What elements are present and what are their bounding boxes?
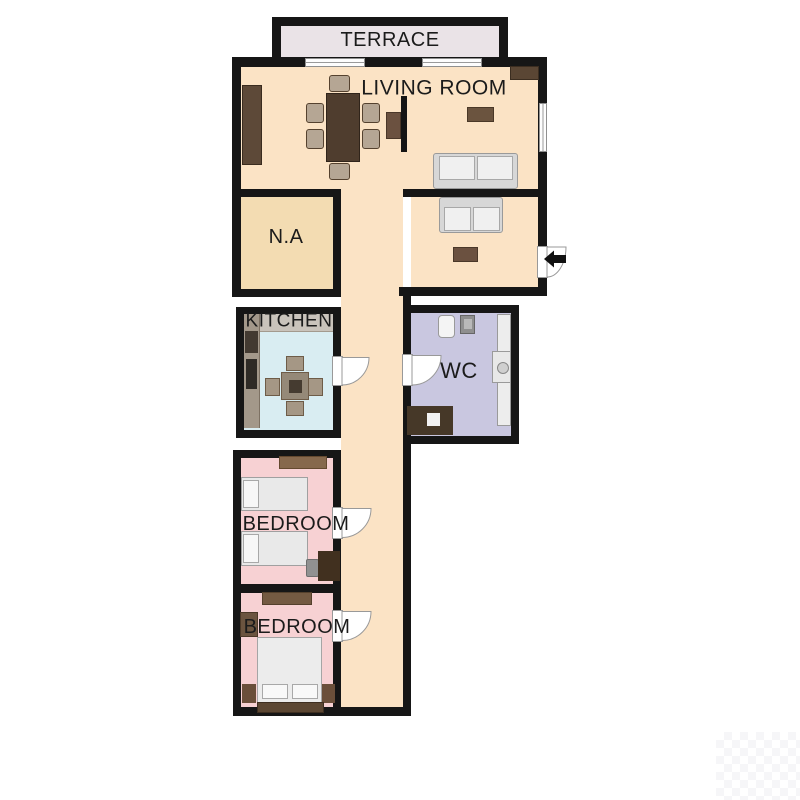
entrance-arrow-icon [544,251,566,268]
hallway-right-wall [403,287,411,716]
wall-cabinet [510,66,539,80]
bedroom-1-label: BEDROOM [243,514,350,534]
nightstand [322,684,335,703]
tv-screen [401,96,407,152]
kitchen-label: KITCHEN [246,312,333,331]
kitchen-bottom-wall [236,430,341,438]
kitchen-door-opening [333,357,341,385]
bedroom-2-label: BEDROOM [244,617,351,637]
coffee-table [453,247,478,262]
hallway-bottom-wall [333,707,411,716]
kitchen-table [281,372,309,400]
terrace-window-right [422,58,482,67]
living-room-window [539,103,548,152]
living-room-label: LIVING ROOM [361,78,507,99]
double-bed [257,637,322,710]
terrace-wall-top [272,17,508,26]
sideboard [242,85,262,165]
na-bottom-wall [232,289,341,297]
exterior-wall-left [232,57,241,297]
kitchen-chair [286,401,304,416]
nightstand [242,684,256,703]
shelf-rug [279,456,327,469]
terrace-label: TERRACE [340,30,439,50]
wc-top-wall [403,305,519,313]
entry-divider-wall [403,189,547,197]
dining-table [326,93,360,162]
terrace-window-left [305,58,365,67]
dining-chair [362,129,380,149]
checker-pattern [716,732,800,800]
desk [318,551,340,581]
tv-cabinet [386,112,401,139]
bedroom-1-left-wall [233,450,241,593]
toilet [438,315,455,338]
dining-chair [306,129,324,149]
dining-chair [329,163,350,180]
wardrobe [262,592,312,605]
dining-chair [329,75,350,92]
floor-plan: TERRACE LIVING ROOM N.A KITCHEN WC BEDRO… [0,0,800,800]
oven [246,359,257,389]
entry-bottom-wall [399,287,547,296]
dining-chair [362,103,380,123]
washer-cabinet [407,406,453,435]
bedroom-2-left-wall [233,584,241,716]
sofa-large [433,153,518,189]
sink [460,315,475,334]
exterior-wall-top [232,57,547,67]
side-table [467,107,494,122]
single-bed [241,477,308,511]
single-bed [241,531,308,566]
wc-door-opening [403,355,411,385]
kitchen-chair [286,356,304,371]
fridge [245,331,258,353]
wc-bottom-wall [403,436,519,444]
kitchen-left-wall [236,307,244,438]
wc-label: WC [440,360,478,382]
dining-chair [306,103,324,123]
wc-right-wall [511,305,519,444]
na-label: N.A [269,227,304,247]
na-right-wall [333,189,341,297]
na-top-wall [232,189,341,197]
entrance-door-swing [547,247,566,277]
entrance-door-opening [538,247,547,277]
kitchen-chair [265,378,280,396]
kitchen-chair [308,378,323,396]
sofa-small [439,197,503,233]
washbasin [492,351,511,383]
